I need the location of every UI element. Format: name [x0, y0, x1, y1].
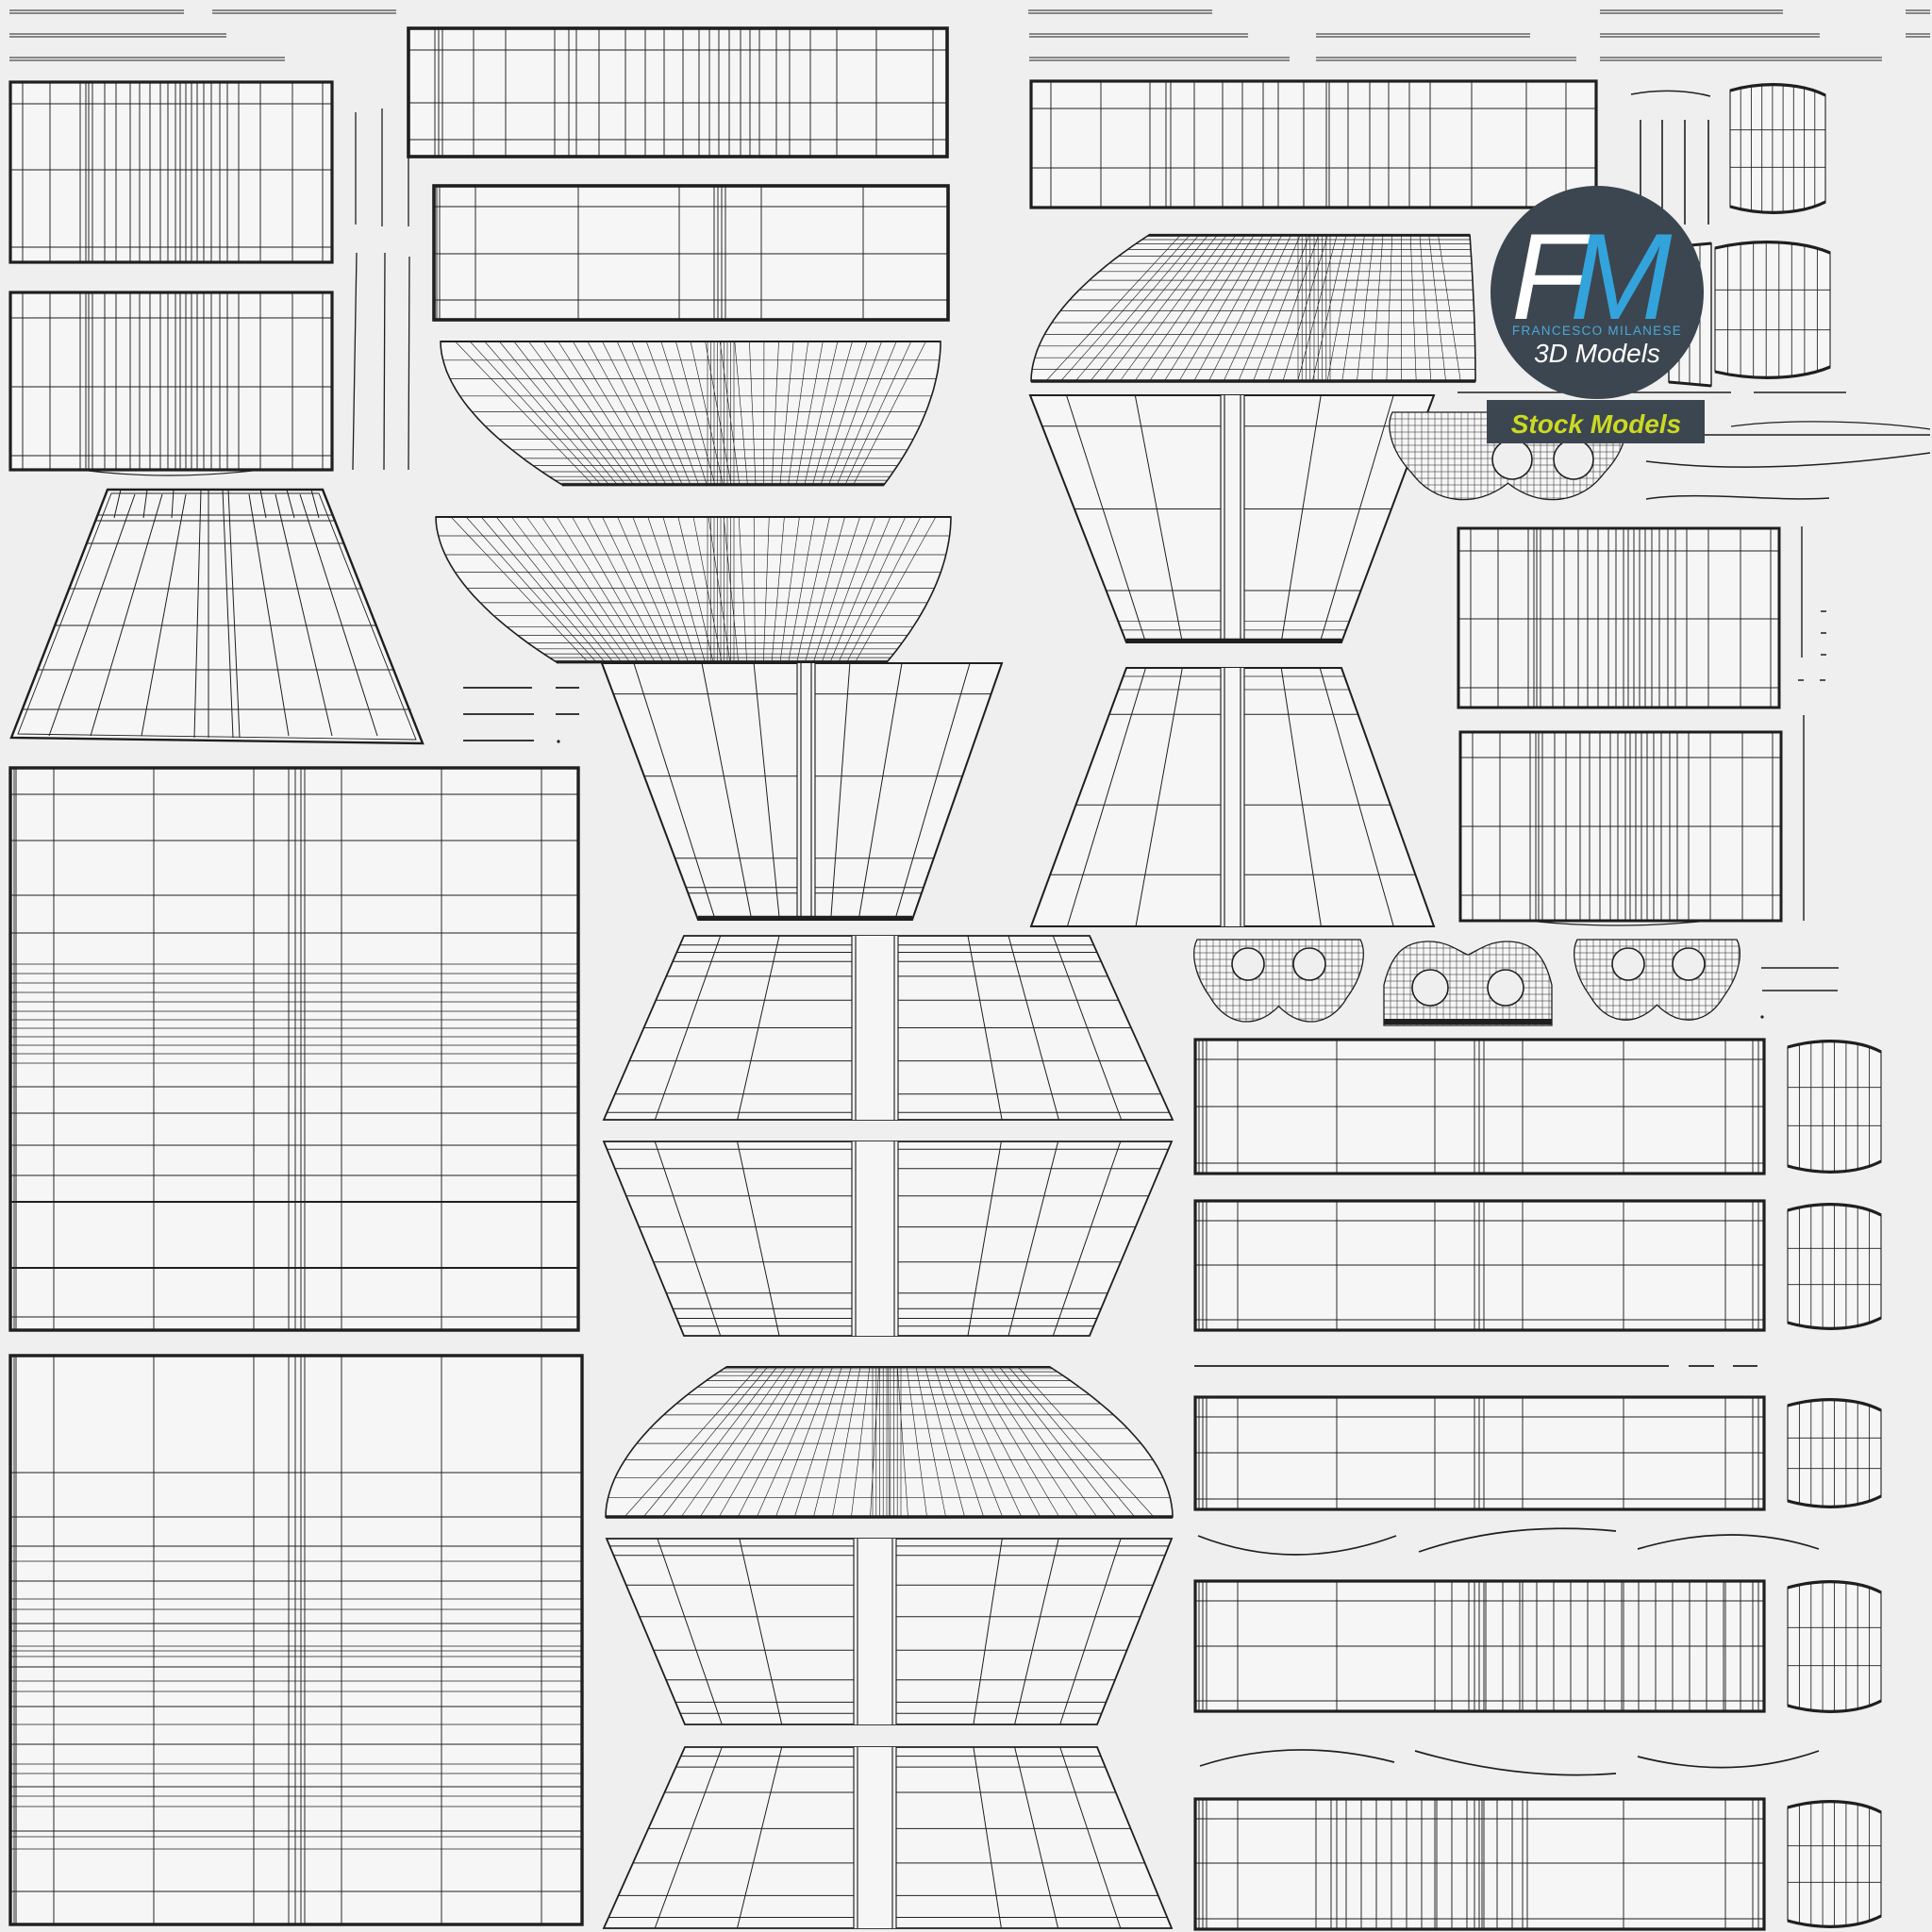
svg-text:Stock Models: Stock Models	[1511, 409, 1681, 439]
svg-text:FRANCESCO MILANESE: FRANCESCO MILANESE	[1512, 324, 1682, 338]
svg-text:3D Models: 3D Models	[1534, 339, 1660, 368]
